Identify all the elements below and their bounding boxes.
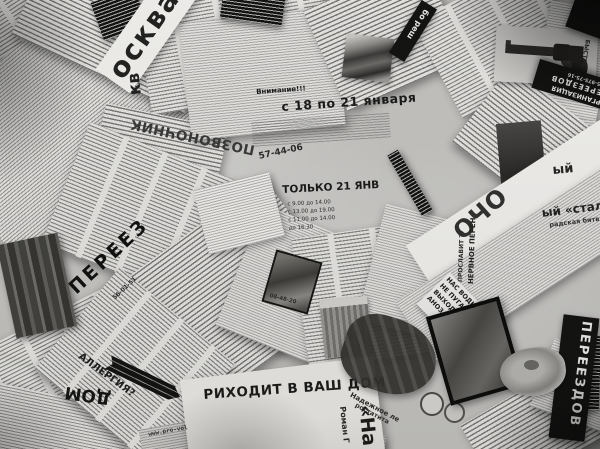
stamp-circle <box>444 402 465 423</box>
sketch-detail <box>524 360 539 370</box>
stamp-circle <box>420 392 444 416</box>
schedule-lines: с 9.00 до 14.00 с 13.00 до 19.00 с 11.00… <box>287 196 385 233</box>
phone-top: 57-44-06 <box>258 144 304 162</box>
headline-yi: ый <box>552 162 574 177</box>
collage-canvas: бо реш осква кв Внимание!!! с 18 по 21 я… <box>0 0 600 449</box>
headline-kv: кв <box>126 72 145 96</box>
headline-tolko: ТОЛЬКО 21 ЯНВ <box>282 180 380 196</box>
photo-figure <box>341 33 394 83</box>
